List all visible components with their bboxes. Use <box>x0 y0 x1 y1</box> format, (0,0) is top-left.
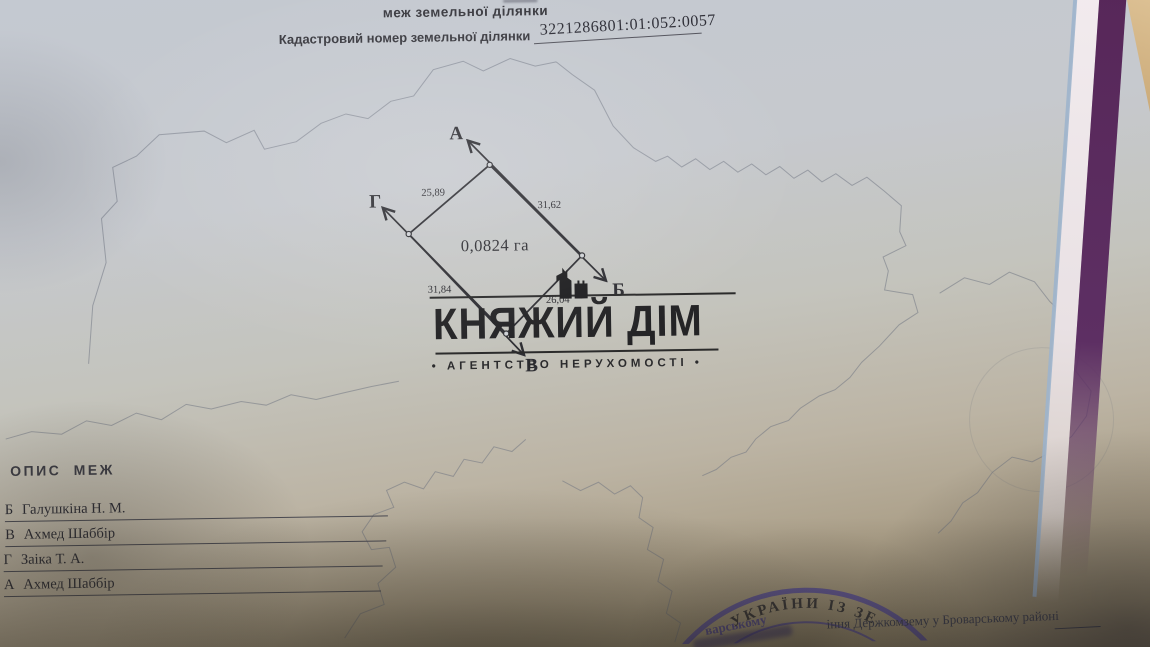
watermark-brand-name: КНЯЖИЙ ДІМ <box>433 297 703 350</box>
tagline-bullet-right: • <box>695 357 703 369</box>
boundary-point-letter: А <box>4 577 15 593</box>
tagline-bullet-left: • <box>432 361 440 373</box>
boundary-point-letter: Б <box>5 502 14 518</box>
vertex-label-g: Г <box>369 191 381 212</box>
brand-building-icon <box>553 264 590 299</box>
photographed-cadastral-document: меж земельної ділянки Кадастровий номер … <box>0 0 1150 647</box>
side-length-ab: 31,62 <box>537 200 561 211</box>
side-length-ga: 25,89 <box>421 188 445 199</box>
boundary-description-heading: ОПИС МЕЖ <box>10 461 115 479</box>
boundary-point-letter: В <box>5 527 15 543</box>
vertex-label-a: А <box>449 123 463 144</box>
boundary-owner-name: Ахмед Шаббір <box>24 525 115 542</box>
plot-area-label: 0,0824 га <box>461 235 530 255</box>
boundary-owner-name: Заіка Т. А. <box>21 551 85 568</box>
boundary-point-letter: Г <box>3 552 12 568</box>
boundary-owner-name: Галушкіна Н. М. <box>22 500 126 518</box>
side-length-vg: 31,84 <box>428 284 453 295</box>
boundary-owner-name: Ахмед Шаббір <box>23 575 114 592</box>
document-page: меж земельної ділянки Кадастровий номер … <box>0 0 1150 647</box>
